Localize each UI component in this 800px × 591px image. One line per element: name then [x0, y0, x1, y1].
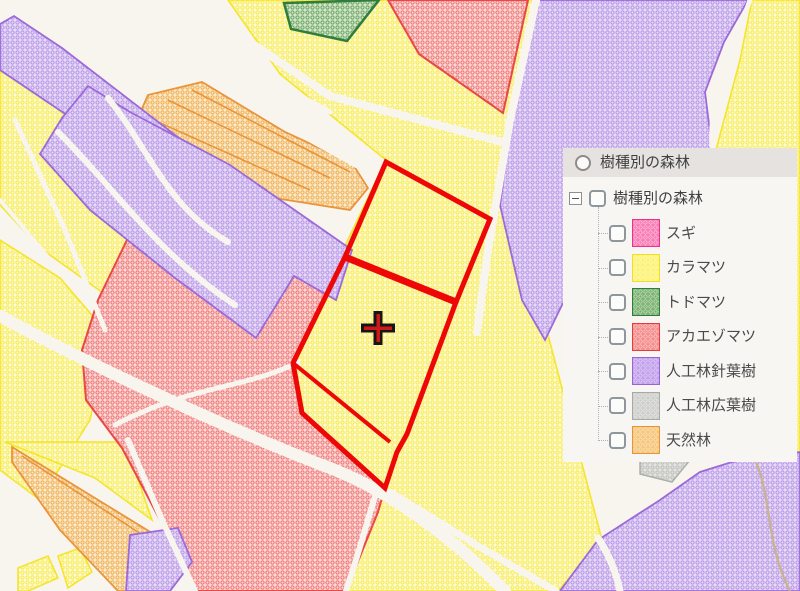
legend-item-akaezomatsu: アカエゾマツ	[598, 320, 797, 355]
legend-item-sugi: スギ	[598, 216, 797, 251]
layer-root-checkbox[interactable]	[589, 190, 606, 207]
legend-label-akaezomatsu: アカエゾマツ	[666, 329, 756, 344]
legend-label-karamatsu: カラマツ	[666, 260, 726, 275]
legend-item-todomatsu: トドマツ	[598, 285, 797, 320]
legend-checkbox-sugi[interactable]	[609, 225, 626, 242]
legend-label-jinko-shinyoju: 人工林針葉樹	[666, 364, 756, 379]
legend-checkbox-akaezomatsu[interactable]	[609, 328, 626, 345]
layer-root-label: 樹種別の森林	[613, 191, 703, 206]
legend-swatch-tennenrin	[632, 426, 660, 454]
legend-swatch-todomatsu	[632, 288, 660, 316]
legend-label-sugi: スギ	[666, 226, 696, 241]
collapse-expander-icon[interactable]	[569, 192, 582, 205]
legend-swatch-akaezomatsu	[632, 323, 660, 351]
legend-swatch-sugi	[632, 219, 660, 247]
legend-item-jinko-shinyoju: 人工林針葉樹	[598, 354, 797, 389]
legend-swatch-jinko-koyoju	[632, 392, 660, 420]
legend-checkbox-jinko-koyoju[interactable]	[609, 397, 626, 414]
layer-radio-label: 樹種別の森林	[600, 155, 690, 170]
legend-checkbox-todomatsu[interactable]	[609, 294, 626, 311]
legend-item-karamatsu: カラマツ	[598, 251, 797, 286]
layer-radio-row[interactable]: 樹種別の森林	[563, 148, 797, 177]
legend-label-todomatsu: トドマツ	[666, 295, 726, 310]
legend-checkbox-tennenrin[interactable]	[609, 432, 626, 449]
layer-radio-button[interactable]	[575, 155, 591, 171]
layer-tree-node: 樹種別の森林	[569, 190, 797, 207]
legend-label-tennenrin: 天然林	[666, 433, 711, 448]
legend-item-list: スギカラマツトドマツアカエゾマツ人工林針葉樹人工林広葉樹天然林	[598, 207, 797, 458]
legend-item-jinko-koyoju: 人工林広葉樹	[598, 389, 797, 424]
legend-swatch-karamatsu	[632, 254, 660, 282]
legend-item-tennenrin: 天然林	[598, 423, 797, 458]
legend-checkbox-karamatsu[interactable]	[609, 259, 626, 276]
legend-label-jinko-koyoju: 人工林広葉樹	[666, 398, 756, 413]
legend-checkbox-jinko-shinyoju[interactable]	[609, 363, 626, 380]
layer-legend-panel: 樹種別の森林 樹種別の森林 スギカラマツトドマツアカエゾマツ人工林針葉樹人工林広…	[563, 148, 797, 462]
legend-swatch-jinko-shinyoju	[632, 357, 660, 385]
map-viewport[interactable]: 樹種別の森林 樹種別の森林 スギカラマツトドマツアカエゾマツ人工林針葉樹人工林広…	[0, 0, 800, 591]
